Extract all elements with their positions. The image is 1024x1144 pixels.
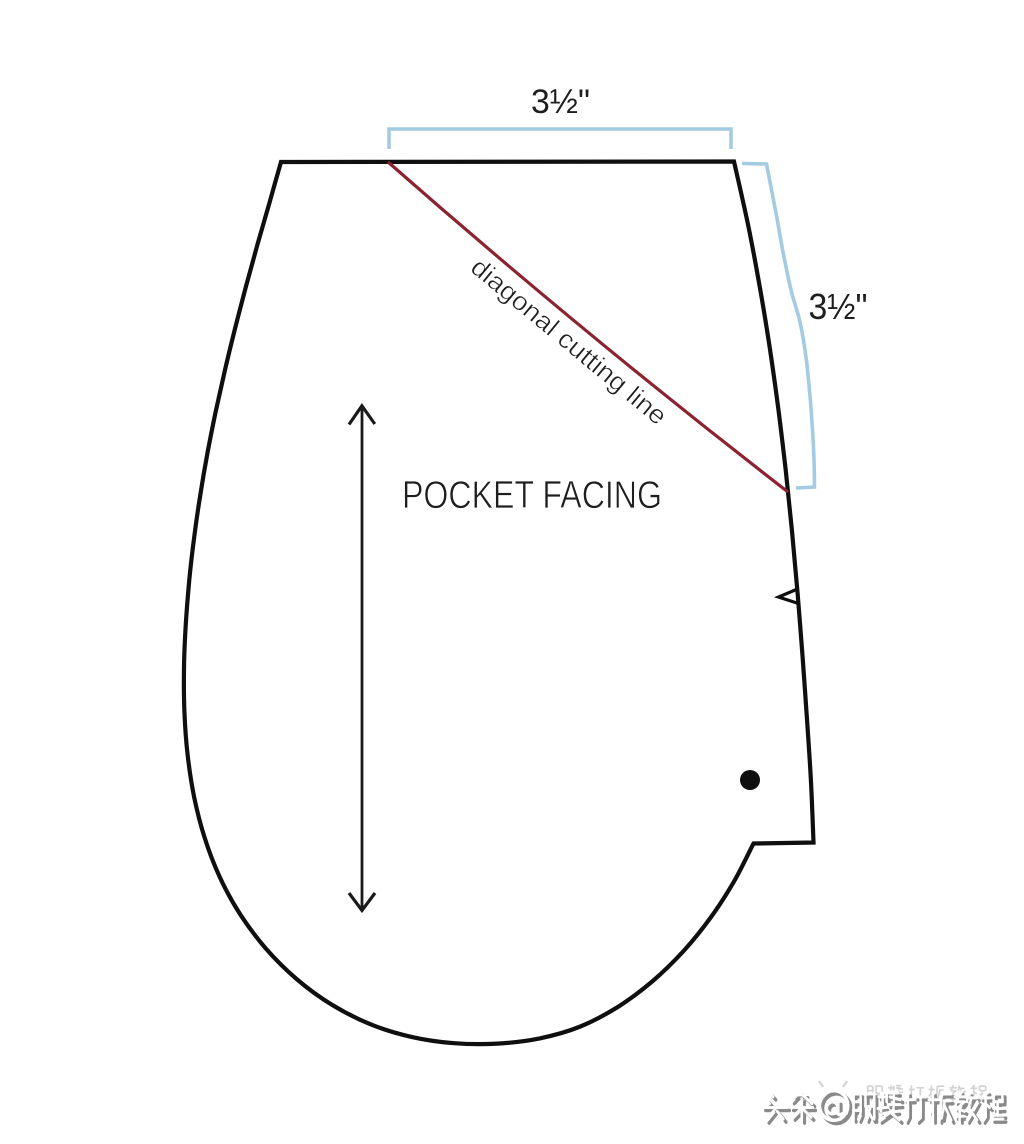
svg-text:POCKET FACING: POCKET FACING [402,474,662,517]
svg-text:3½": 3½" [809,286,868,327]
svg-text:3½": 3½" [531,83,590,121]
svg-text:diagonal cutting line: diagonal cutting line [465,252,673,431]
